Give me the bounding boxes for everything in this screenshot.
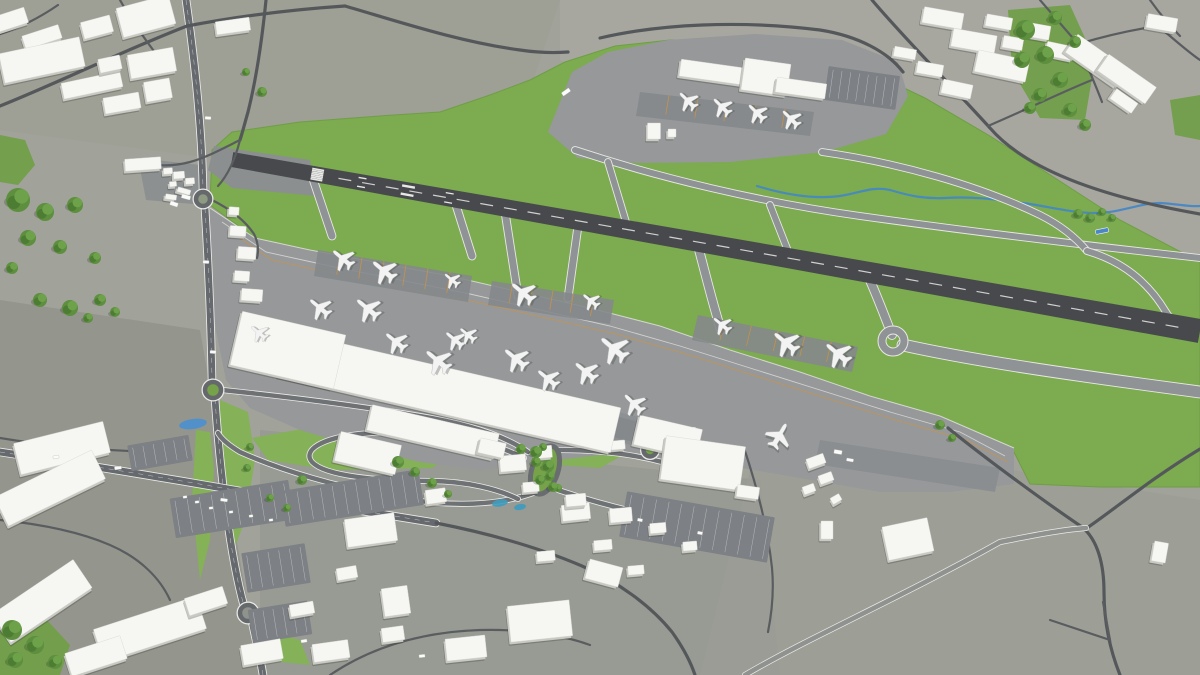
building-49-roof bbox=[594, 539, 613, 551]
vehicle-15 bbox=[209, 506, 213, 509]
vehicle-14 bbox=[195, 500, 199, 503]
vehicle-0 bbox=[205, 116, 211, 119]
vehicle-2 bbox=[210, 350, 216, 353]
tree-canopy-light bbox=[68, 301, 78, 311]
vehicle-19 bbox=[637, 518, 642, 522]
building-62-roof bbox=[163, 168, 172, 175]
tree-canopy-light bbox=[38, 294, 46, 302]
tree-canopy-light bbox=[396, 457, 403, 464]
tree-canopy-light bbox=[87, 314, 93, 320]
tree-canopy-light bbox=[249, 443, 254, 448]
building-59-roof bbox=[821, 521, 833, 539]
building-48-roof bbox=[650, 522, 667, 533]
vehicle-16 bbox=[229, 510, 233, 513]
building-36 bbox=[505, 600, 573, 646]
building-34 bbox=[379, 626, 406, 647]
building-69-roof bbox=[238, 246, 257, 259]
airport-3d-aerial-view bbox=[0, 0, 1200, 675]
tree-canopy-light bbox=[32, 637, 43, 648]
tree-canopy-light bbox=[546, 461, 553, 468]
tree-canopy-light bbox=[26, 231, 36, 241]
building-46-roof bbox=[566, 493, 587, 507]
tree-canopy-light bbox=[539, 476, 545, 482]
building-51-roof bbox=[628, 565, 645, 575]
tree-canopy-light bbox=[245, 68, 250, 73]
tree-canopy-light bbox=[549, 472, 555, 478]
building-59 bbox=[819, 521, 834, 543]
tree-canopy-light bbox=[1073, 37, 1080, 44]
tree-canopy-light bbox=[1089, 214, 1095, 220]
building-70-roof bbox=[234, 270, 250, 281]
building-61 bbox=[122, 157, 161, 175]
building-35-roof bbox=[445, 635, 487, 661]
building-69 bbox=[235, 246, 257, 263]
tree-canopy-light bbox=[1111, 214, 1116, 219]
building-33-roof bbox=[381, 585, 411, 616]
tree-canopy-light bbox=[261, 88, 267, 94]
building-71 bbox=[238, 288, 263, 305]
building-68-roof bbox=[230, 225, 247, 236]
building-9 bbox=[141, 78, 173, 106]
tree-canopy-light bbox=[1042, 47, 1053, 58]
tree-canopy-light bbox=[14, 189, 28, 203]
tree-canopy-light bbox=[98, 295, 105, 302]
building-47 bbox=[607, 507, 633, 527]
tree-canopy-light bbox=[1083, 120, 1090, 127]
tree-canopy-light bbox=[286, 504, 291, 509]
tree-canopy-light bbox=[1020, 53, 1030, 63]
tree-canopy-light bbox=[114, 308, 120, 314]
building-52-roof bbox=[683, 541, 698, 551]
building-72-roof bbox=[229, 207, 240, 216]
tree-canopy-light bbox=[246, 464, 251, 469]
roundabout-north bbox=[196, 192, 210, 206]
building-48 bbox=[647, 522, 667, 537]
tree-canopy-light bbox=[73, 198, 83, 208]
building-61-roof bbox=[125, 157, 162, 171]
vehicle-11 bbox=[301, 639, 307, 643]
vehicle-18 bbox=[269, 518, 273, 521]
tree-canopy-light bbox=[951, 434, 956, 439]
building-34-roof bbox=[381, 626, 405, 643]
tree-canopy-light bbox=[53, 656, 61, 664]
tree-canopy-light bbox=[542, 443, 547, 448]
tree-canopy-light bbox=[535, 458, 541, 464]
tree-canopy-light bbox=[447, 490, 452, 495]
building-50-roof bbox=[537, 550, 556, 562]
building-40 bbox=[423, 488, 448, 508]
tree-canopy-light bbox=[1053, 12, 1061, 20]
building-36-roof bbox=[507, 600, 572, 642]
tree-canopy-light bbox=[13, 653, 23, 663]
tree-canopy-light bbox=[269, 494, 274, 499]
building-64-roof bbox=[185, 178, 194, 185]
building-9-roof bbox=[143, 78, 172, 102]
tree-canopy-light bbox=[534, 447, 541, 454]
airport-scene-canvas bbox=[0, 0, 1200, 675]
tree-canopy-light bbox=[1028, 103, 1035, 110]
tree-canopy-light bbox=[414, 468, 420, 474]
roundabout-terminal bbox=[205, 382, 221, 398]
building-71-roof bbox=[241, 288, 263, 301]
tower-annex-roof bbox=[668, 129, 676, 137]
tree-canopy-light bbox=[520, 445, 526, 451]
building-49 bbox=[591, 539, 613, 554]
building-47-roof bbox=[609, 507, 632, 523]
building-65-roof bbox=[169, 181, 176, 186]
building-52 bbox=[680, 541, 698, 555]
tree-canopy-light bbox=[1038, 89, 1046, 97]
vehicle-17 bbox=[249, 514, 253, 517]
tree-canopy-light bbox=[42, 204, 53, 215]
building-51 bbox=[625, 565, 645, 579]
tree-canopy-light bbox=[939, 421, 945, 427]
tree-canopy-light bbox=[1022, 21, 1034, 33]
vehicle-12 bbox=[419, 654, 425, 658]
vehicle-1 bbox=[203, 260, 209, 263]
tree-canopy-light bbox=[1077, 210, 1083, 216]
building-50 bbox=[534, 550, 556, 565]
tree-canopy-light bbox=[552, 483, 558, 489]
vehicle-20 bbox=[697, 531, 702, 535]
tree-canopy-light bbox=[93, 253, 100, 260]
tree-canopy-light bbox=[9, 621, 21, 633]
tree-canopy-light bbox=[301, 476, 307, 482]
building-46 bbox=[563, 493, 587, 510]
control-tower bbox=[645, 123, 661, 143]
tree-canopy-light bbox=[431, 479, 437, 485]
tree-canopy-light bbox=[1058, 73, 1068, 83]
vehicle-13 bbox=[183, 495, 187, 498]
tree-canopy-light bbox=[10, 263, 17, 270]
control-tower-roof bbox=[648, 123, 661, 139]
building-35 bbox=[442, 635, 487, 665]
tree-canopy-light bbox=[58, 241, 66, 249]
tree-canopy-light bbox=[1101, 208, 1106, 213]
tree-canopy-light bbox=[1068, 104, 1076, 112]
building-33 bbox=[379, 585, 412, 620]
building-63-roof bbox=[173, 171, 184, 179]
